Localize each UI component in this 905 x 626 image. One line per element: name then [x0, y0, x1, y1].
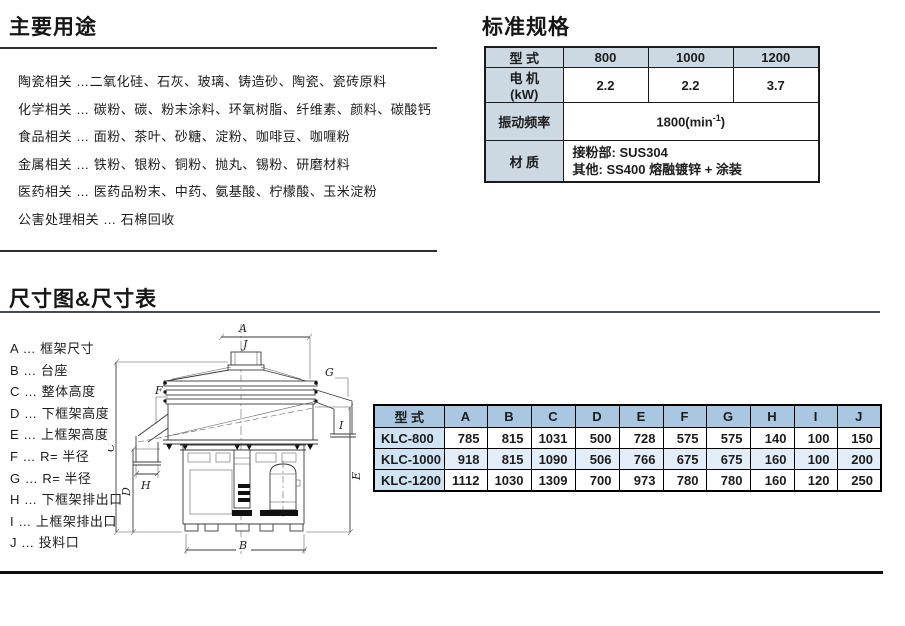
dim-value-cell: 506 [575, 449, 619, 470]
dim-row-klc800: KLC-800 785 815 1031 500 728 575 575 140… [374, 428, 881, 449]
spec-motor-value: 2.2 [648, 68, 733, 103]
dim-value-cell: 675 [663, 449, 706, 470]
dim-value-cell: 575 [663, 428, 706, 449]
diagram-label-J: J [241, 338, 248, 351]
spec-material-value: 接粉部: SUS304 其他: SS400 熔融镀锌 + 涂装 [563, 141, 819, 183]
dim-header: E [619, 405, 663, 428]
dim-value-cell: 575 [706, 428, 750, 449]
diagram-label-E: E [350, 472, 363, 481]
dim-value-cell: 100 [794, 449, 837, 470]
legend-item: F … R= 半径 [10, 446, 123, 468]
dim-header: A [444, 405, 487, 428]
main-uses-item: 陶瓷相关 …二氧化硅、石灰、玻璃、铸造砂、陶瓷、瓷砖原料 [18, 68, 431, 96]
spec-motor-label-line2: (kW) [486, 87, 563, 102]
main-uses-item: 食品相关 … 面粉、茶叶、砂糖、淀粉、咖啡豆、咖喱粉 [18, 123, 431, 151]
dim-row-klc1200: KLC-1200 1112 1030 1309 700 973 780 780 … [374, 470, 881, 492]
diagram-label-A: A [238, 322, 247, 335]
legend-item: J … 投料口 [10, 532, 123, 554]
dim-value-cell: 780 [706, 470, 750, 492]
main-uses-item: 化学相关 … 碳粉、碳、粉末涂料、环氧树脂、纤维素、颜料、碳酸钙 [18, 96, 431, 124]
dim-header: C [531, 405, 575, 428]
main-uses-item: 金属相关 … 铁粉、银粉、铜粉、抛丸、锡粉、研磨材料 [18, 151, 431, 179]
dim-value-cell: 728 [619, 428, 663, 449]
main-uses-item: 医药相关 … 医药品粉末、中药、氨基酸、柠檬酸、玉米淀粉 [18, 178, 431, 206]
dim-model-cell: KLC-1200 [374, 470, 444, 492]
diagram-label-F: F [154, 384, 163, 397]
dim-value-cell: 1031 [531, 428, 575, 449]
spec-header-1000: 1000 [648, 47, 733, 68]
spec-motor-label-line1: 电 机 [486, 68, 563, 87]
spec-header-800: 800 [563, 47, 648, 68]
dim-row-klc1000: KLC-1000 918 815 1090 506 766 675 675 16… [374, 449, 881, 470]
spec-material-line1: 接粉部: SUS304 [573, 144, 819, 161]
dim-header: I [794, 405, 837, 428]
legend-item: E … 上框架高度 [10, 424, 123, 446]
dim-value-cell: 100 [794, 428, 837, 449]
legend-item: D … 下框架高度 [10, 403, 123, 425]
spec-vibration-value: 1800(min-1) [563, 103, 819, 141]
dim-value-cell: 120 [794, 470, 837, 492]
dim-value-cell: 815 [487, 449, 531, 470]
dim-model-cell: KLC-1000 [374, 449, 444, 470]
spec-header-row: 型 式 800 1000 1200 [485, 47, 819, 68]
dim-value-cell: 815 [487, 428, 531, 449]
spec-header-1200: 1200 [733, 47, 819, 68]
dim-value-cell: 250 [837, 470, 881, 492]
spec-table: 型 式 800 1000 1200 电 机 (kW) 2.2 2.2 3.7 振… [484, 46, 820, 183]
spec-material-label: 材 质 [485, 141, 563, 183]
dim-value-cell: 675 [706, 449, 750, 470]
dim-value-cell: 160 [750, 449, 794, 470]
spec-header-model: 型 式 [485, 47, 563, 68]
dim-value-cell: 780 [663, 470, 706, 492]
legend-item: H … 下框架排出口 [10, 489, 123, 511]
divider-under-main-uses-title [0, 47, 437, 49]
spec-material-row: 材 质 接粉部: SUS304 其他: SS400 熔融镀锌 + 涂装 [485, 141, 819, 183]
dim-value-cell: 1112 [444, 470, 487, 492]
dim-header: B [487, 405, 531, 428]
dim-value-cell: 200 [837, 449, 881, 470]
diagram-label-I: I [338, 419, 344, 432]
dim-value-cell: 1090 [531, 449, 575, 470]
legend-item: C … 整体高度 [10, 381, 123, 403]
main-uses-item: 公害处理相关 … 石棉回收 [18, 206, 431, 234]
divider-bottom [0, 571, 883, 574]
spec-motor-row: 电 机 (kW) 2.2 2.2 3.7 [485, 68, 819, 103]
spec-motor-value: 3.7 [733, 68, 819, 103]
main-uses-title: 主要用途 [9, 11, 97, 41]
dim-value-cell: 150 [837, 428, 881, 449]
dim-value-cell: 700 [575, 470, 619, 492]
legend-item: G … R= 半径 [10, 468, 123, 490]
main-uses-list: 陶瓷相关 …二氧化硅、石灰、玻璃、铸造砂、陶瓷、瓷砖原料 化学相关 … 碳粉、碳… [18, 68, 431, 233]
diagram-label-G: G [325, 366, 334, 379]
dim-value-cell: 1030 [487, 470, 531, 492]
diagram-label-B: B [238, 539, 247, 552]
dim-value-cell: 766 [619, 449, 663, 470]
dim-value-cell: 973 [619, 470, 663, 492]
legend-item: I … 上框架排出口 [10, 511, 123, 533]
dim-header: F [663, 405, 706, 428]
dim-header-model: 型 式 [374, 405, 444, 428]
spec-title: 标准规格 [482, 11, 570, 41]
dim-value-cell: 160 [750, 470, 794, 492]
divider-under-main-uses-list [0, 250, 437, 252]
dim-header: G [706, 405, 750, 428]
dim-model-cell: KLC-800 [374, 428, 444, 449]
spec-vibration-row: 振动频率 1800(min-1) [485, 103, 819, 141]
diagram-label-C: C [108, 443, 117, 452]
dim-header: J [837, 405, 881, 428]
dims-title: 尺寸图&尺寸表 [9, 283, 157, 313]
dims-legend: A … 框架尺寸 B … 台座 C … 整体高度 D … 下框架高度 E … 上… [10, 338, 123, 554]
dim-value-cell: 1309 [531, 470, 575, 492]
dim-header-row: 型 式 A B C D E F G H I J [374, 405, 881, 428]
dim-header: D [575, 405, 619, 428]
spec-material-line2: 其他: SS400 熔融镀锌 + 涂装 [573, 161, 819, 178]
dim-value-cell: 918 [444, 449, 487, 470]
spec-vibration-label: 振动频率 [485, 103, 563, 141]
dim-value-cell: 785 [444, 428, 487, 449]
spec-motor-label: 电 机 (kW) [485, 68, 563, 103]
legend-item: B … 台座 [10, 360, 123, 382]
diagram-label-H: H [140, 479, 151, 492]
dim-value-cell: 500 [575, 428, 619, 449]
machine-dimension-diagram: A J F H G I [108, 312, 370, 568]
spec-motor-value: 2.2 [563, 68, 648, 103]
diagram-label-D: D [120, 487, 133, 497]
dim-header: H [750, 405, 794, 428]
legend-item: A … 框架尺寸 [10, 338, 123, 360]
dimension-table: 型 式 A B C D E F G H I J KLC-800 785 815 … [373, 404, 882, 492]
dim-value-cell: 140 [750, 428, 794, 449]
superscript: -1 [713, 113, 721, 123]
